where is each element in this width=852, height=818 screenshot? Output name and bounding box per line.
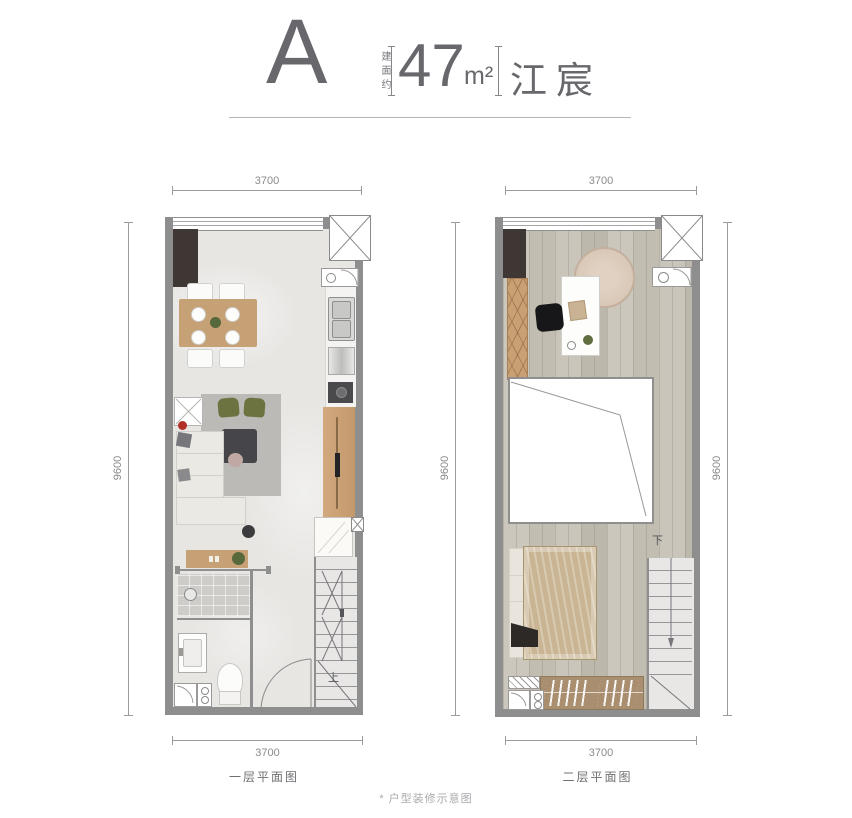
desk-plant xyxy=(583,335,593,345)
flue-ring xyxy=(658,272,669,283)
entry-door-swing xyxy=(259,653,315,713)
dining-chair xyxy=(219,349,245,368)
washer-door-swing xyxy=(509,691,529,709)
books xyxy=(568,300,587,321)
refrigerator xyxy=(328,347,355,375)
second-floor-plan: 下 xyxy=(495,217,700,717)
dim-bottom-first: 3700 xyxy=(172,747,363,759)
sofa-chaise xyxy=(176,497,246,525)
dimension-bracket-right xyxy=(498,46,499,96)
stair-direction-label: 上 xyxy=(328,669,339,685)
knob xyxy=(534,701,542,709)
dim-line-bottom-second xyxy=(505,740,697,741)
dim-left-first: 9600 xyxy=(112,448,124,488)
vanity-sink xyxy=(178,633,207,673)
track-end xyxy=(175,566,180,574)
sink-basin xyxy=(332,301,351,319)
equipment-platform xyxy=(661,215,703,261)
bathroom-wall xyxy=(250,570,253,707)
throw-pillow xyxy=(177,468,191,482)
dim-left-second: 9600 xyxy=(439,448,451,488)
dim-line-top-first xyxy=(172,190,362,191)
cooktop xyxy=(328,382,353,403)
cup xyxy=(567,341,576,350)
wardrobe-rail xyxy=(541,692,643,693)
water-heater-unit xyxy=(652,267,692,287)
cabinet xyxy=(503,229,526,278)
console-table xyxy=(186,550,248,568)
desk xyxy=(561,276,600,356)
knob xyxy=(201,687,209,695)
control-unit xyxy=(530,690,544,710)
footnote: * 户型装修示意图 xyxy=(0,790,852,806)
shaft-box xyxy=(351,517,364,532)
area-value: 47 xyxy=(398,37,465,94)
ottoman xyxy=(228,453,243,467)
faucet xyxy=(179,648,183,656)
red-kettle xyxy=(178,421,187,430)
staircase-down xyxy=(647,558,694,709)
dim-bottom-second: 3700 xyxy=(505,747,697,759)
caption-first-floor: 一层平面图 xyxy=(165,768,363,785)
dim-line-right-second xyxy=(727,222,728,716)
plant xyxy=(232,552,245,565)
x-mark xyxy=(662,216,702,260)
sink-basin xyxy=(332,320,351,338)
door-swing-small xyxy=(672,268,691,286)
equipment-platform xyxy=(329,215,371,261)
kitchen-sink xyxy=(328,297,355,341)
floorplan-page: A 建面约 47 m² 江宸 3700 9600 3700 一层平面图 3700… xyxy=(0,0,852,818)
table-plant xyxy=(210,317,221,328)
water-heater-unit xyxy=(321,268,359,287)
burner xyxy=(336,387,347,398)
tv-cabinet xyxy=(323,407,355,520)
shower-head xyxy=(184,588,197,601)
project-name: 江宸 xyxy=(510,50,602,104)
area-prefix-label: 建面约 xyxy=(377,51,392,95)
header-divider xyxy=(229,117,631,118)
closet-fold-lines xyxy=(315,518,352,556)
knob xyxy=(201,696,209,704)
dim-top-second: 3700 xyxy=(505,175,697,187)
plate xyxy=(191,307,206,322)
dim-right-second: 9600 xyxy=(711,448,723,488)
unit-letter: A xyxy=(266,6,327,98)
x-mark xyxy=(352,518,363,531)
lounge-chair xyxy=(217,397,240,418)
laundry-shelf xyxy=(508,676,540,689)
tv xyxy=(335,453,340,477)
dim-line-top-second xyxy=(505,190,697,191)
console-knob xyxy=(215,556,219,562)
under-stair-closet xyxy=(314,517,353,557)
dim-line-bottom-first xyxy=(172,740,363,741)
track-end xyxy=(266,566,271,574)
stair-direction-label: 下 xyxy=(652,532,663,548)
shower-partition xyxy=(177,618,252,620)
washer-door-swing xyxy=(175,684,196,706)
toilet-tank xyxy=(219,691,241,705)
knob xyxy=(534,693,542,701)
void-diagonals xyxy=(510,379,648,518)
hanging-clothes xyxy=(597,680,639,706)
flue-ring xyxy=(326,273,336,283)
plate xyxy=(191,330,206,345)
plate xyxy=(225,330,240,345)
dim-line-left-first xyxy=(128,222,129,716)
entry-cabinet xyxy=(173,229,198,287)
open-wardrobe xyxy=(540,676,644,710)
shower-area xyxy=(177,574,252,616)
dim-line-left-second xyxy=(455,222,456,716)
console-knob xyxy=(209,556,213,562)
basin xyxy=(183,639,202,667)
caption-second-floor: 二层平面图 xyxy=(495,768,700,785)
throw-pillow xyxy=(176,432,192,448)
washing-machine xyxy=(508,690,530,710)
x-mark xyxy=(330,216,370,260)
desk-chair xyxy=(535,303,565,333)
dim-top-first: 3700 xyxy=(172,175,362,187)
dimension-bracket-left xyxy=(391,46,392,96)
sliding-door-track xyxy=(177,569,269,571)
wardrobe-column xyxy=(507,278,528,380)
control-unit xyxy=(197,683,212,707)
hanging-clothes xyxy=(543,680,591,706)
robot-vacuum xyxy=(242,525,255,538)
lounge-chair xyxy=(243,397,265,417)
sofa-cushion-seam xyxy=(177,453,223,454)
plate xyxy=(225,307,240,322)
stair-markings xyxy=(649,558,692,709)
area-unit: m² xyxy=(464,62,493,91)
void-opening xyxy=(508,377,654,524)
washing-machine xyxy=(174,683,197,707)
door-swing-small xyxy=(340,269,358,286)
dining-chair xyxy=(187,349,213,368)
first-floor-plan: 上 xyxy=(165,217,363,715)
